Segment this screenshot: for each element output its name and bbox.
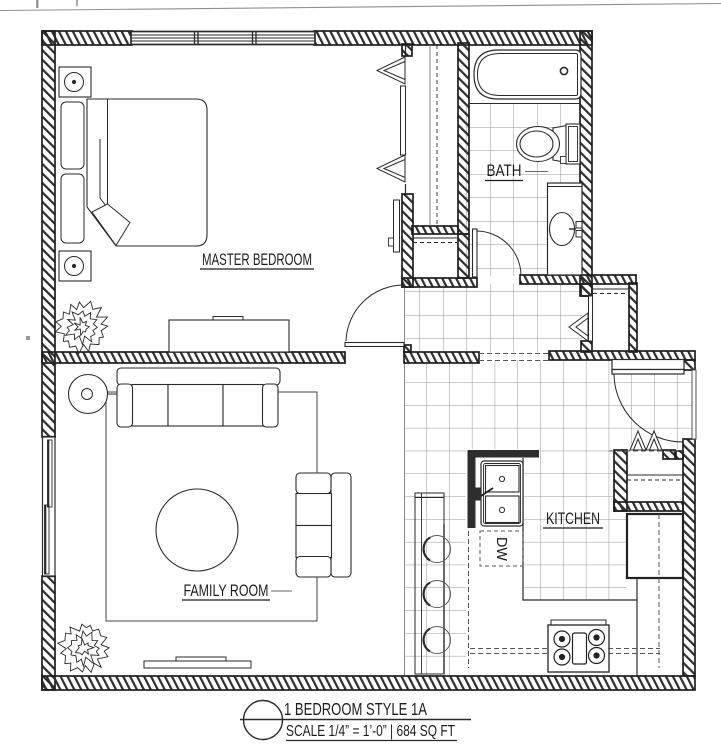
svg-text:MASTER BEDROOM: MASTER BEDROOM: [202, 250, 312, 269]
svg-text:BATH: BATH: [487, 161, 522, 180]
svg-text:1 BEDROOM STYLE 1A: 1 BEDROOM STYLE 1A: [284, 699, 427, 719]
svg-text:SCALE 1/4” = 1’-0” | 684 SQ FT: SCALE 1/4” = 1’-0” | 684 SQ FT: [286, 723, 455, 740]
svg-text:KITCHEN: KITCHEN: [546, 509, 600, 528]
svg-text:FAMILY ROOM: FAMILY ROOM: [184, 581, 269, 600]
svg-text:DW: DW: [493, 537, 509, 561]
